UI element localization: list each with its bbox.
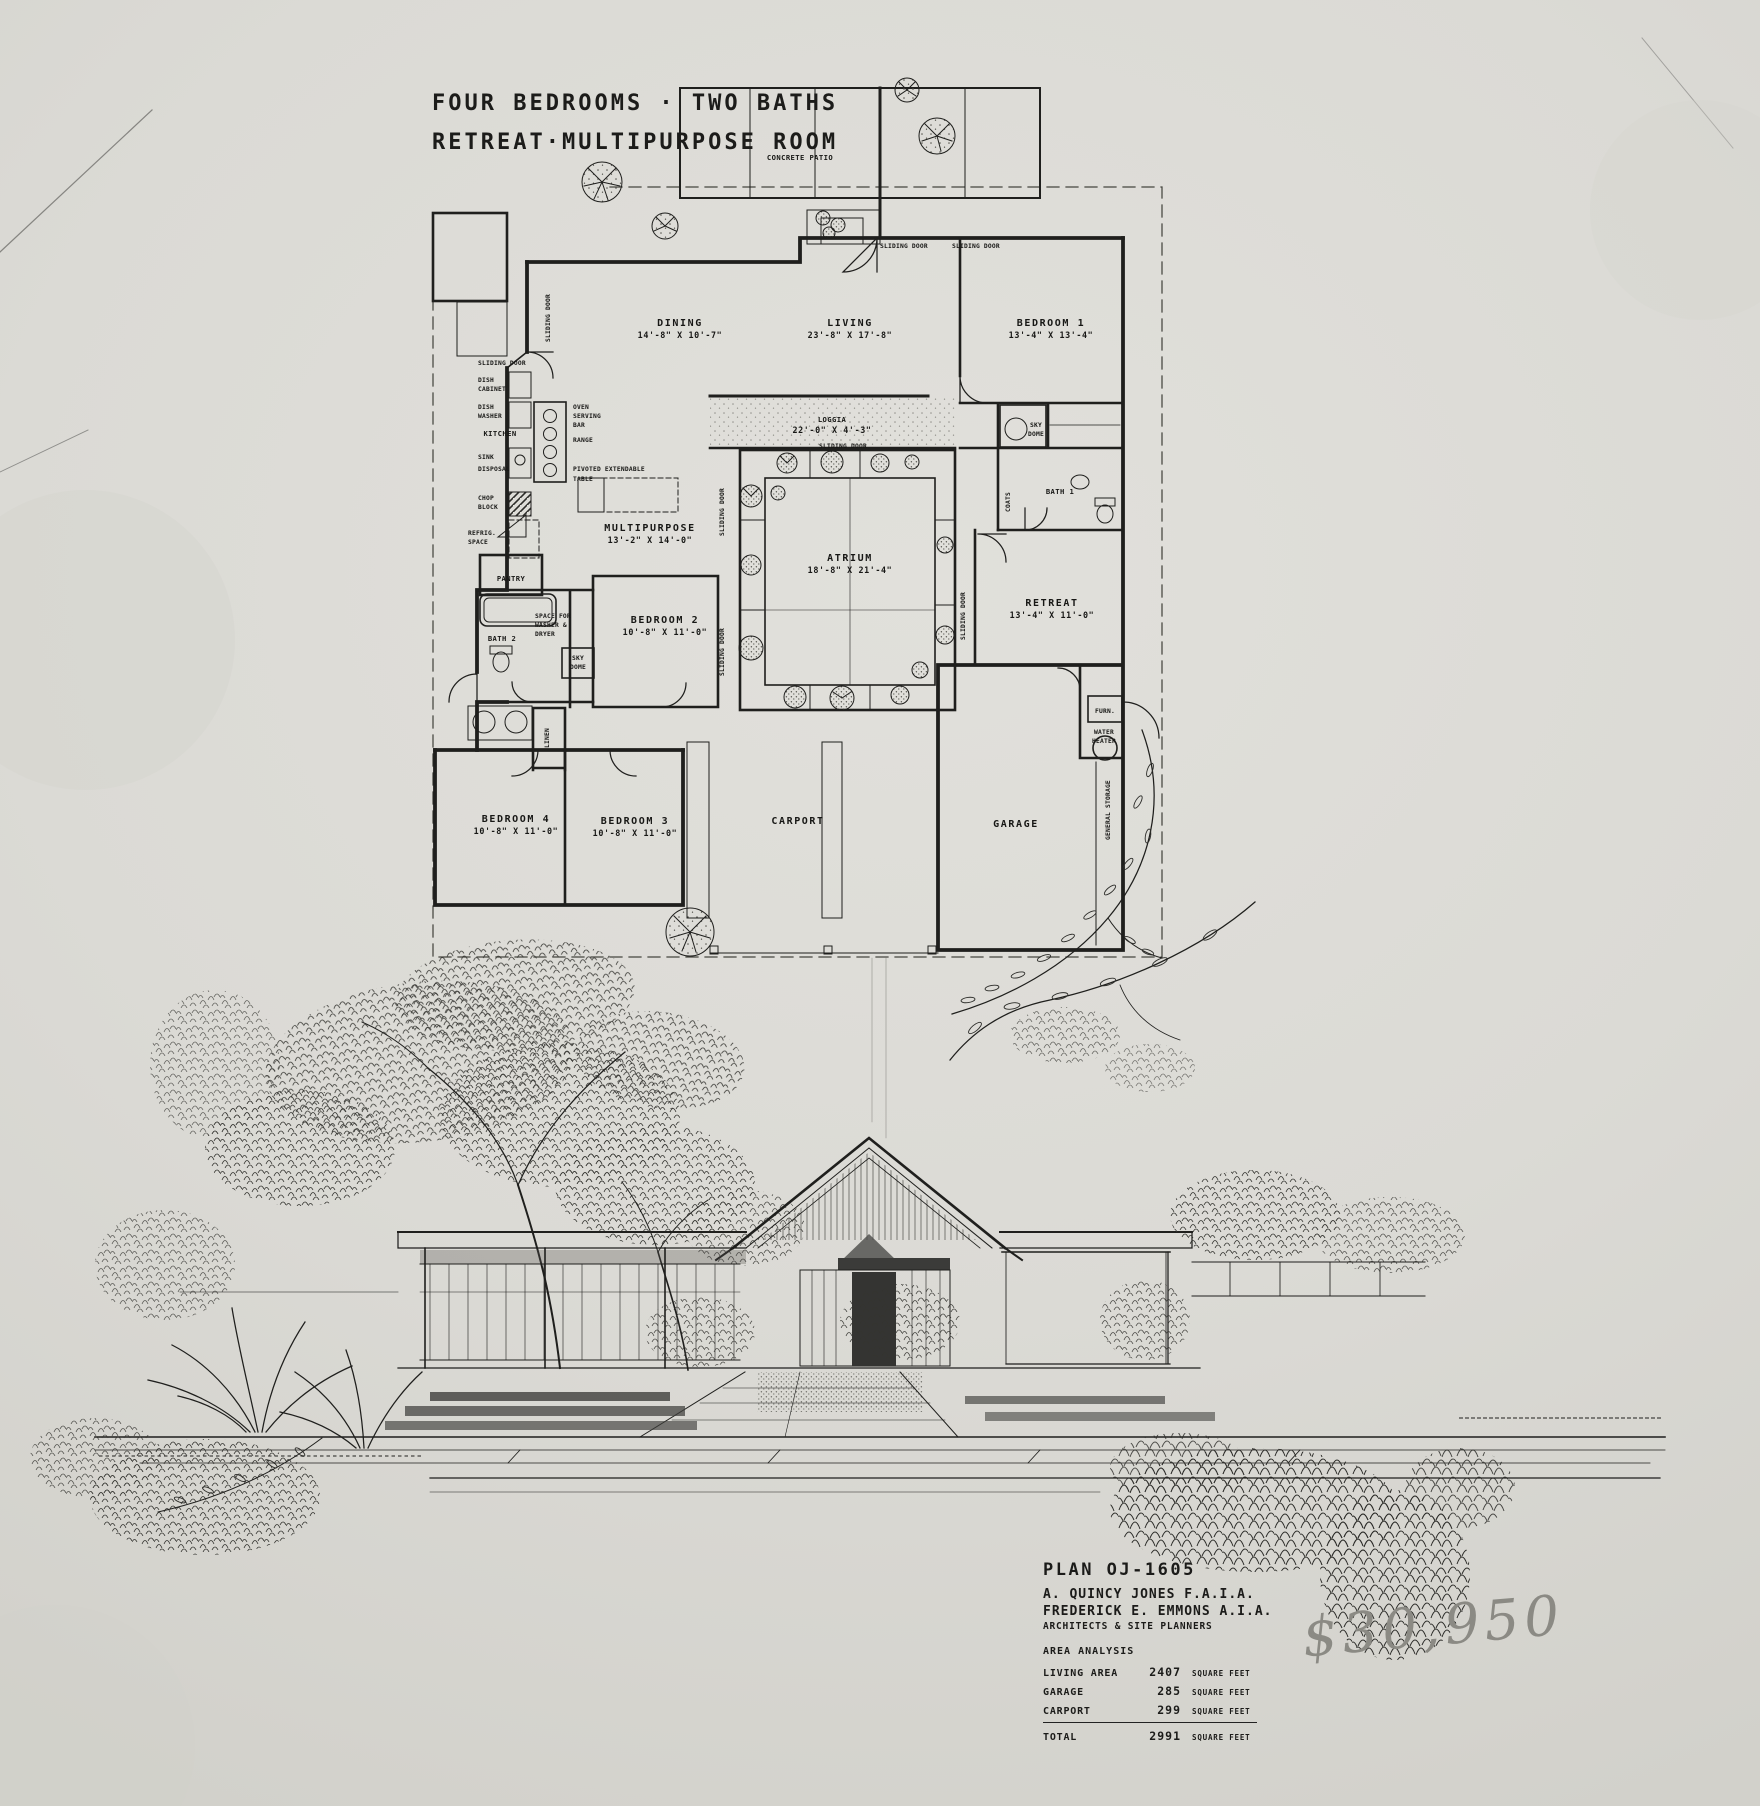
walls-interior <box>477 238 1123 945</box>
room-dims-bedroom1: 13'-4" X 13'-4" <box>1009 330 1094 340</box>
total-unit: SQUARE FEET <box>1192 1733 1250 1742</box>
area-analysis-title: AREA ANALYSIS <box>1043 1646 1343 1657</box>
dish-cabinet-label: DISH <box>478 377 494 384</box>
room-label-living: LIVING <box>827 318 873 329</box>
refrig-space-label: REFRIG. <box>468 530 496 537</box>
sliding-door-label: SLIDING DOOR <box>719 628 726 676</box>
foliage-bottom-left <box>30 1308 422 1555</box>
architect-name-1: A. QUINCY JONES F.A.I.A. <box>1043 1586 1343 1603</box>
row-value: 299 <box>1139 1703 1181 1717</box>
entry-beam <box>838 1258 950 1270</box>
sliding-door-label: SLIDING DOOR <box>960 592 967 640</box>
row-label: CARPORT <box>1043 1706 1139 1717</box>
room-dims-atrium: 18'-8" X 21'-4" <box>808 565 893 575</box>
title-block: PLAN OJ-1605 A. QUINCY JONES F.A.I.A. FR… <box>1043 1560 1343 1748</box>
room-label-carport: CARPORT <box>771 816 824 827</box>
shed <box>433 213 507 356</box>
tree-icon <box>919 118 955 154</box>
area-analysis-table: LIVING AREA 2407 SQUARE FEET GARAGE 285 … <box>1043 1665 1343 1743</box>
tree-icon <box>895 78 919 102</box>
architect-name-2: FREDERICK E. EMMONS A.I.A. <box>1043 1603 1343 1620</box>
washer-dryer-label: WASHER & <box>535 622 567 629</box>
room-label-garage: GARAGE <box>993 819 1039 830</box>
gable-face <box>762 1152 976 1240</box>
title-line-2: RETREAT·MULTIPURPOSE ROOM <box>432 130 838 155</box>
sliding-door-label: SLIDING DOOR <box>545 294 552 342</box>
general-storage-label: GENERAL STORAGE <box>1105 780 1112 840</box>
room-label-bath1: BATH 1 <box>1046 487 1074 496</box>
room-label-bedroom4: BEDROOM 4 <box>482 814 551 825</box>
table-total-row: TOTAL 2991 SQUARE FEET <box>1043 1729 1257 1743</box>
washer-dryer-label: DRYER <box>535 631 555 638</box>
coats-label: COATS <box>1005 492 1012 512</box>
dish-cabinet-label: CABINET <box>478 386 506 393</box>
tree-icon <box>582 162 622 202</box>
dish-washer-label: DISH <box>478 404 494 411</box>
pencil-guides <box>872 958 886 1138</box>
furnace-label: FURN. <box>1095 708 1115 715</box>
room-dims-bedroom4: 10'-8" X 11'-0" <box>474 826 559 836</box>
washer-dryer-label: SPACE FOR <box>535 613 571 620</box>
room-dims-retreat: 13'-4" X 11'-0" <box>1010 610 1095 620</box>
water-heater-label: WATER <box>1094 729 1114 736</box>
pantry-label: PANTRY <box>497 574 526 583</box>
row-unit: SQUARE FEET <box>1192 1669 1250 1678</box>
chop-block-label: CHOP <box>478 495 494 502</box>
disposal-label: DISPOSAL <box>478 466 510 473</box>
row-value: 285 <box>1139 1684 1181 1698</box>
chop-block-label: BLOCK <box>478 504 498 511</box>
room-label-bedroom1: BEDROOM 1 <box>1017 318 1086 329</box>
vine-sketch <box>952 730 1162 1014</box>
oven-serving-bar-label: SERVING <box>573 413 601 420</box>
room-label-atrium: ATRIUM <box>827 553 873 564</box>
sliding-door-label: SLIDING DOOR <box>719 488 726 536</box>
room-dims-multipurpose: 13'-2" X 14'-0" <box>608 535 693 545</box>
page-title: FOUR BEDROOMS · TWO BATHS RETREAT·MULTIP… <box>432 84 838 162</box>
sky-dome-label: DOME <box>1028 431 1044 438</box>
row-value: 2407 <box>1139 1665 1181 1679</box>
room-label-kitchen: KITCHEN <box>483 429 516 438</box>
room-dims-loggia: 22'-0" X 4'-3" <box>793 425 872 435</box>
title-line-1: FOUR BEDROOMS · TWO BATHS <box>432 91 838 116</box>
table-row: CARPORT 299 SQUARE FEET <box>1043 1703 1257 1717</box>
sky-dome-label: SKY <box>572 655 584 662</box>
sliding-door-label: SLIDING DOOR <box>880 243 928 250</box>
row-unit: SQUARE FEET <box>1192 1707 1250 1716</box>
sliding-door-label: SLIDING DOOR <box>952 243 1000 250</box>
shrub-icon <box>816 211 845 239</box>
total-label: TOTAL <box>1043 1732 1139 1743</box>
room-label-retreat: RETREAT <box>1025 598 1078 609</box>
spiky-plant <box>148 1308 422 1448</box>
elevation-rendering <box>30 902 1665 1660</box>
row-label: GARAGE <box>1043 1687 1139 1698</box>
room-dims-bedroom3: 10'-8" X 11'-0" <box>593 828 678 838</box>
room-dims-dining: 14'-8" X 10'-7" <box>638 330 723 340</box>
room-label-bedroom3: BEDROOM 3 <box>601 816 670 827</box>
room-label-dining: DINING <box>657 318 703 329</box>
dish-washer-label: WASHER <box>478 413 502 420</box>
pivoted-table-label: TABLE <box>573 476 593 483</box>
water-heater-label: HEATER <box>1092 738 1116 745</box>
sky-dome-label: DOME <box>570 664 586 671</box>
sliding-door-label: SLIDING DOOR <box>478 360 526 367</box>
pivoted-table-label: PIVOTED EXTENDABLE <box>573 466 645 473</box>
room-dims-living: 23'-8" X 17'-8" <box>808 330 893 340</box>
table-rule <box>1043 1722 1257 1723</box>
drawing-sheet: CONCRETE PATIO <box>0 0 1760 1806</box>
room-label-loggia: LOGGIA <box>818 415 847 424</box>
oven-serving-bar-label: BAR <box>573 422 585 429</box>
sky-dome-label: SKY <box>1030 422 1042 429</box>
table-row: LIVING AREA 2407 SQUARE FEET <box>1043 1665 1257 1679</box>
room-label-bedroom2: BEDROOM 2 <box>631 615 700 626</box>
sliding-door-label: SLIDING DOOR <box>819 443 867 450</box>
tree-icon <box>652 213 678 239</box>
sink-label: SINK <box>478 454 494 461</box>
linen-label: LINEN <box>544 728 551 748</box>
carport-strips <box>687 742 938 954</box>
total-value: 2991 <box>1139 1729 1181 1743</box>
firm-role: ARCHITECTS & SITE PLANNERS <box>1043 1621 1343 1632</box>
room-label-multipurpose: MULTIPURPOSE <box>604 523 695 534</box>
refrig-space-label: SPACE <box>468 539 488 546</box>
tree-icon <box>666 908 714 956</box>
plan-number: PLAN OJ-1605 <box>1043 1560 1343 1580</box>
table-row: GARAGE 285 SQUARE FEET <box>1043 1684 1257 1698</box>
range-label: RANGE <box>573 437 593 444</box>
drawing-canvas: CONCRETE PATIO <box>0 0 1760 1806</box>
row-label: LIVING AREA <box>1043 1668 1139 1679</box>
room-dims-bedroom2: 10'-8" X 11'-0" <box>623 627 708 637</box>
atrium-planting <box>739 451 954 710</box>
row-unit: SQUARE FEET <box>1192 1688 1250 1697</box>
room-label-bath2: BATH 2 <box>488 634 516 643</box>
oven-serving-bar-label: OVEN <box>573 404 589 411</box>
